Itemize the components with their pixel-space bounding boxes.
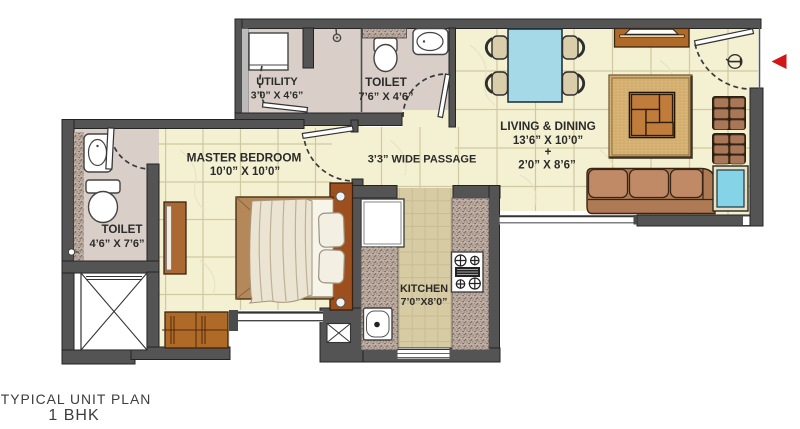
svg-text:7’6” X 4’6”: 7’6” X 4’6” bbox=[358, 91, 413, 103]
svg-text:1 BHK: 1 BHK bbox=[48, 407, 99, 424]
svg-text:KITCHEN: KITCHEN bbox=[400, 283, 448, 295]
svg-text:TOILET: TOILET bbox=[365, 75, 408, 89]
svg-text:3’3” WIDE PASSAGE: 3’3” WIDE PASSAGE bbox=[368, 154, 477, 166]
svg-text:4’6” X 7’6”: 4’6” X 7’6” bbox=[89, 238, 144, 250]
svg-text:13’6” X 10’0”: 13’6” X 10’0” bbox=[513, 135, 583, 147]
svg-text:3’0” X 4’6”: 3’0” X 4’6” bbox=[251, 90, 304, 102]
svg-text:+: + bbox=[545, 147, 552, 159]
svg-text:MASTER BEDROOM: MASTER BEDROOM bbox=[187, 151, 302, 165]
svg-text:TOILET: TOILET bbox=[101, 223, 142, 236]
svg-text:2’0” X 8’6”: 2’0” X 8’6” bbox=[518, 160, 576, 172]
svg-text:10’0” X 10’0”: 10’0” X 10’0” bbox=[210, 166, 280, 178]
svg-text:7’0”X8’0”: 7’0”X8’0” bbox=[401, 296, 448, 308]
svg-text:LIVING & DINING: LIVING & DINING bbox=[500, 119, 596, 133]
svg-text:UTILITY: UTILITY bbox=[256, 76, 298, 88]
svg-text:TYPICAL UNIT PLAN: TYPICAL UNIT PLAN bbox=[1, 391, 152, 407]
